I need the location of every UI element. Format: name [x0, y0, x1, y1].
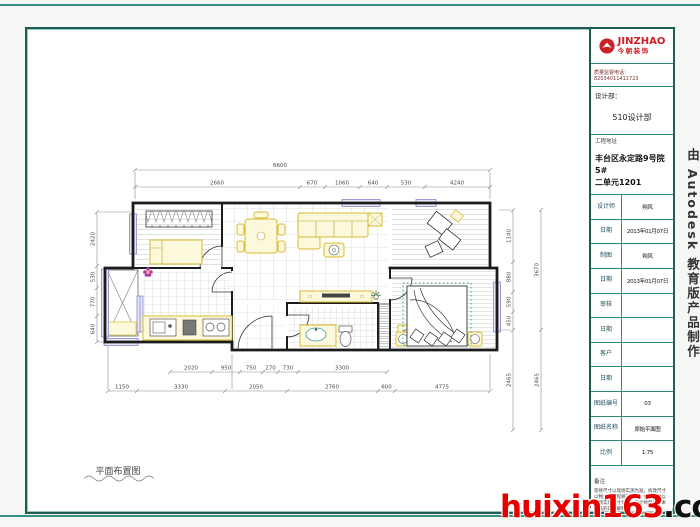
project-address-line2: 二单元1201	[595, 177, 669, 189]
brand-name: JINZHAO	[618, 37, 666, 47]
row-label: 图纸名称	[591, 417, 622, 441]
jinzhao-logo-icon	[599, 38, 615, 54]
title-table: 设计师朔风 日期2013年01月07日 制图朔风 日期2013年01月07日 审…	[591, 195, 673, 466]
row-value: 2013年01月07日	[622, 220, 673, 244]
row-label: 比例	[591, 441, 622, 465]
row-value	[622, 343, 673, 367]
site-watermark: huixin163.com	[500, 492, 700, 523]
department-label: 设计部：	[595, 90, 669, 100]
row-label: 审核	[591, 294, 622, 318]
title-block: JINZHAO 今朝装饰 质量监督电话：82034011411723 设计部： …	[589, 29, 673, 508]
row-value: 1:75	[622, 441, 673, 465]
table-row: 客户	[591, 343, 673, 368]
autodesk-education-watermark: 由 Autodesk 教育版产品制作	[683, 148, 700, 448]
cad-screenshot: { "brand": { "name": "JINZHAO", "subtitl…	[0, 0, 700, 527]
table-row: 日期	[591, 367, 673, 392]
row-value: 朔风	[622, 244, 673, 268]
department-section: 设计部： 510设计部	[591, 87, 673, 135]
table-row: 制图朔风	[591, 244, 673, 269]
table-row: 图纸编号03	[591, 392, 673, 417]
table-row: 日期2013年01月07日	[591, 269, 673, 294]
quality-phone-text: 质量监督电话：82034011411723	[594, 69, 670, 82]
row-value	[622, 367, 673, 391]
row-value: 朔风	[622, 195, 673, 219]
row-label: 日期	[591, 367, 622, 391]
row-label: 制图	[591, 244, 622, 268]
row-label: 日期	[591, 220, 622, 244]
remarks-label: 备注	[594, 479, 605, 485]
row-value: 原始平面图	[622, 417, 673, 441]
brand-subtitle: 今朝装饰	[618, 48, 666, 55]
row-value	[622, 294, 673, 318]
table-row: 审核	[591, 294, 673, 319]
row-label: 图纸编号	[591, 392, 622, 416]
row-label: 日期	[591, 269, 622, 293]
table-row: 图纸名称原始平面图	[591, 417, 673, 442]
row-value: 03	[622, 392, 673, 416]
table-row: 设计师朔风	[591, 195, 673, 220]
top-border-line	[0, 4, 700, 6]
row-label: 设计师	[591, 195, 622, 219]
project-address-section: 工程地址 丰台区永定路9号院5# 二单元1201	[591, 135, 673, 195]
table-row: 日期2013年01月07日	[591, 220, 673, 245]
row-label: 日期	[591, 318, 622, 342]
quality-phone-row: 质量监督电话：82034011411723	[591, 64, 673, 87]
department-value: 510设计部	[595, 112, 669, 123]
table-row: 日期	[591, 318, 673, 343]
project-address-line1: 丰台区永定路9号院5#	[595, 153, 669, 177]
brand-logo: JINZHAO 今朝装饰	[591, 29, 673, 64]
site-watermark-name: huixin163	[500, 489, 663, 525]
drawing-frame	[25, 27, 675, 514]
table-row: 比例1:75	[591, 441, 673, 466]
site-watermark-tld: .com	[663, 489, 700, 525]
row-value	[622, 318, 673, 342]
row-value: 2013年01月07日	[622, 269, 673, 293]
row-label: 客户	[591, 343, 622, 367]
project-address-label: 工程地址	[595, 137, 669, 145]
